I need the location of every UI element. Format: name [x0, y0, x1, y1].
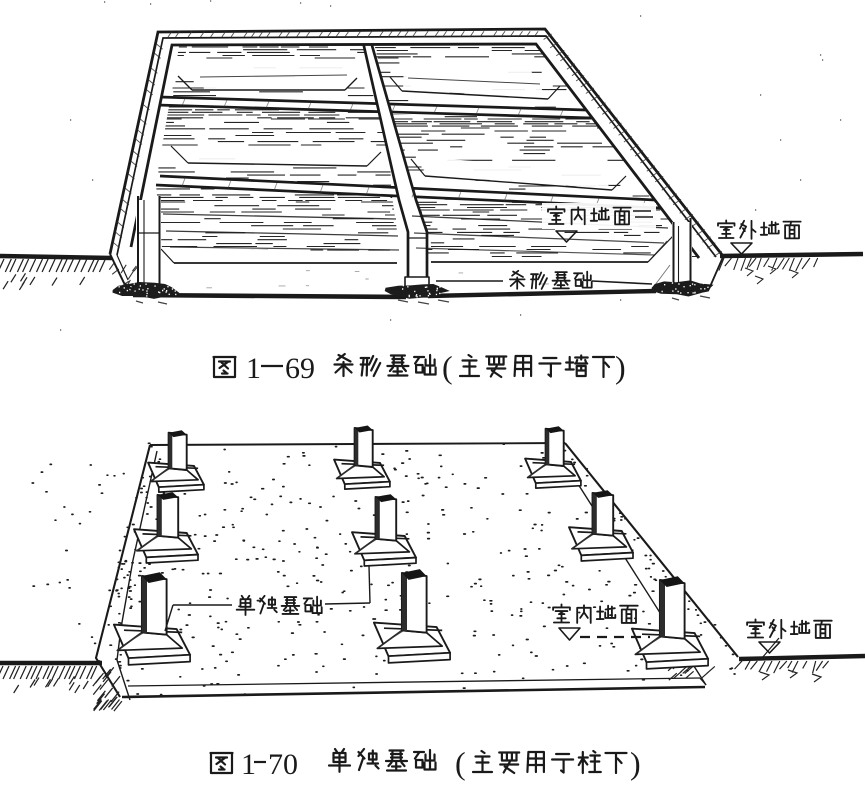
svg-text:): ): [615, 349, 626, 385]
svg-text:): ): [630, 745, 641, 781]
svg-text:70: 70: [268, 748, 298, 781]
svg-text:(: (: [455, 745, 466, 781]
svg-text:1: 1: [246, 352, 261, 385]
svg-text:(: (: [442, 349, 453, 385]
svg-text:1: 1: [241, 748, 256, 781]
svg-text:69: 69: [285, 352, 315, 385]
